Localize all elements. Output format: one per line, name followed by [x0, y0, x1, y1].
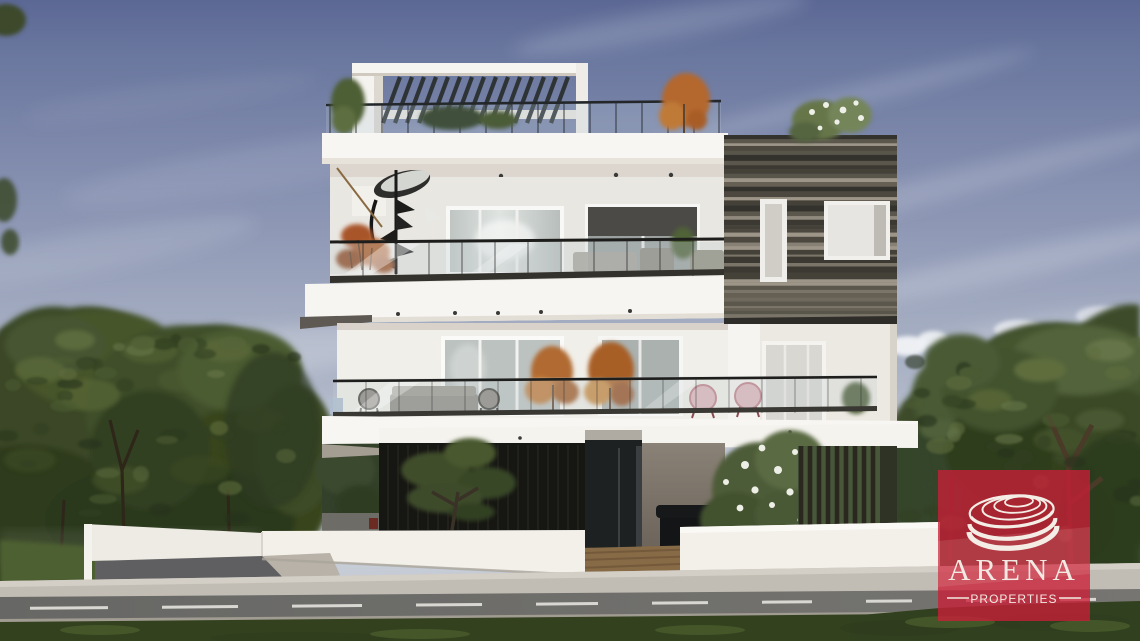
svg-text:PROPERTIES: PROPERTIES [970, 592, 1057, 606]
svg-text:ARENA: ARENA [948, 552, 1080, 587]
